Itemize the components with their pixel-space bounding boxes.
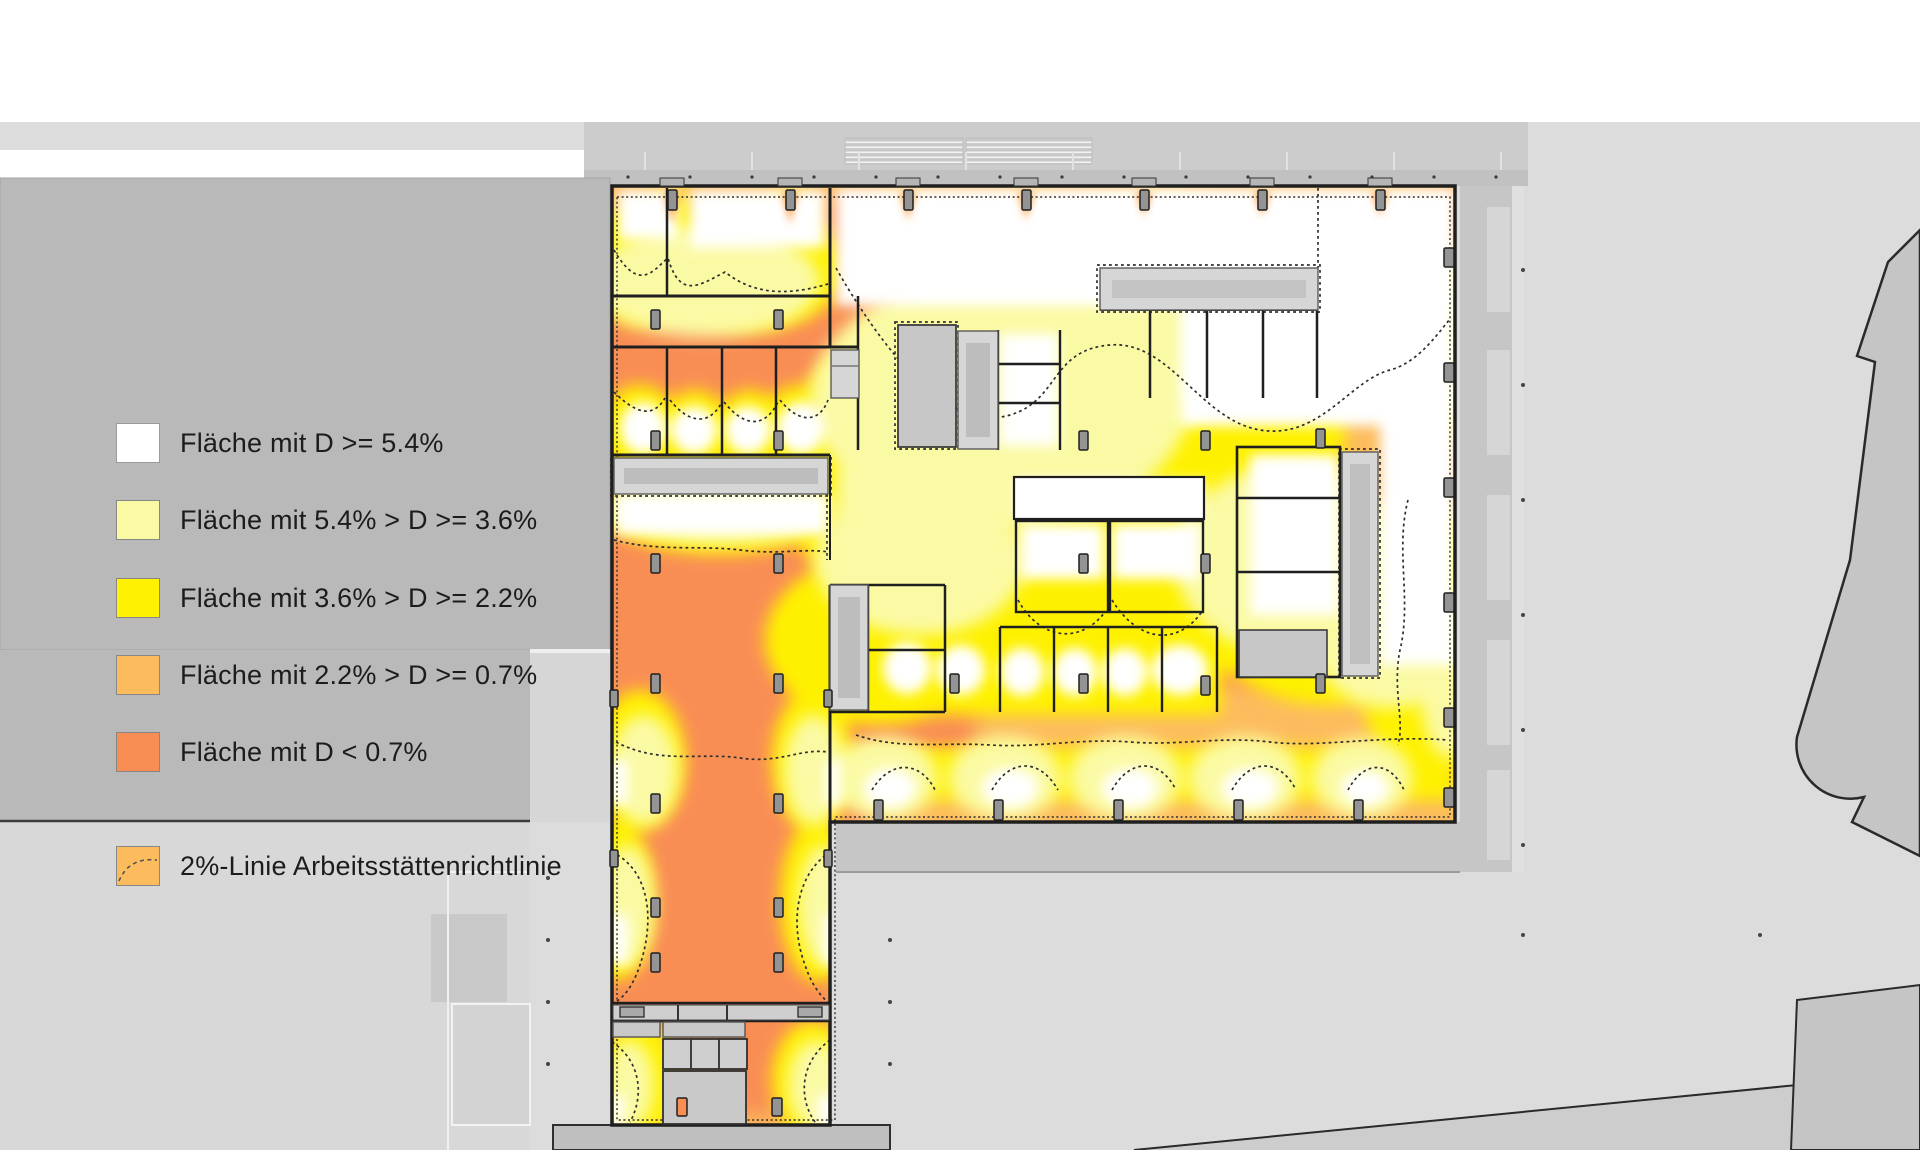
legend-item-5.4-3.6: Fläche mit 5.4% > D >= 3.6% <box>116 500 536 540</box>
legend-swatch-2percent-line <box>116 846 160 886</box>
legend-item-d-ge-5.4: Fläche mit D >= 5.4% <box>116 423 536 463</box>
legend-swatch-white <box>116 423 160 463</box>
floor-plan-canvas <box>0 0 1920 1150</box>
legend-item-label: Fläche mit 5.4% > D >= 3.6% <box>180 500 537 540</box>
dashed-contour-glyph <box>117 847 159 885</box>
legend-item-label: 2%-Linie Arbeitsstättenrichtlinie <box>180 846 562 886</box>
legend-swatch-light-orange <box>116 655 160 695</box>
legend-swatch-orange <box>116 732 160 772</box>
legend-swatch-pale-yellow <box>116 500 160 540</box>
legend-item-label: Fläche mit D >= 5.4% <box>180 423 444 463</box>
legend-item-3.6-2.2: Fläche mit 3.6% > D >= 2.2% <box>116 578 536 618</box>
legend-item-2percent-line: 2%-Linie Arbeitsstättenrichtlinie <box>116 846 596 886</box>
legend-item-label: Fläche mit 3.6% > D >= 2.2% <box>180 578 537 618</box>
legend-item-2.2-0.7: Fläche mit 2.2% > D >= 0.7% <box>116 655 536 695</box>
daylight-plan-sheet: Fläche mit D >= 5.4% Fläche mit 5.4% > D… <box>0 0 1920 1150</box>
legend-item-label: Fläche mit 2.2% > D >= 0.7% <box>180 655 537 695</box>
legend-item-d-lt-0.7: Fläche mit D < 0.7% <box>116 732 536 772</box>
legend-item-label: Fläche mit D < 0.7% <box>180 732 428 772</box>
legend-swatch-yellow <box>116 578 160 618</box>
